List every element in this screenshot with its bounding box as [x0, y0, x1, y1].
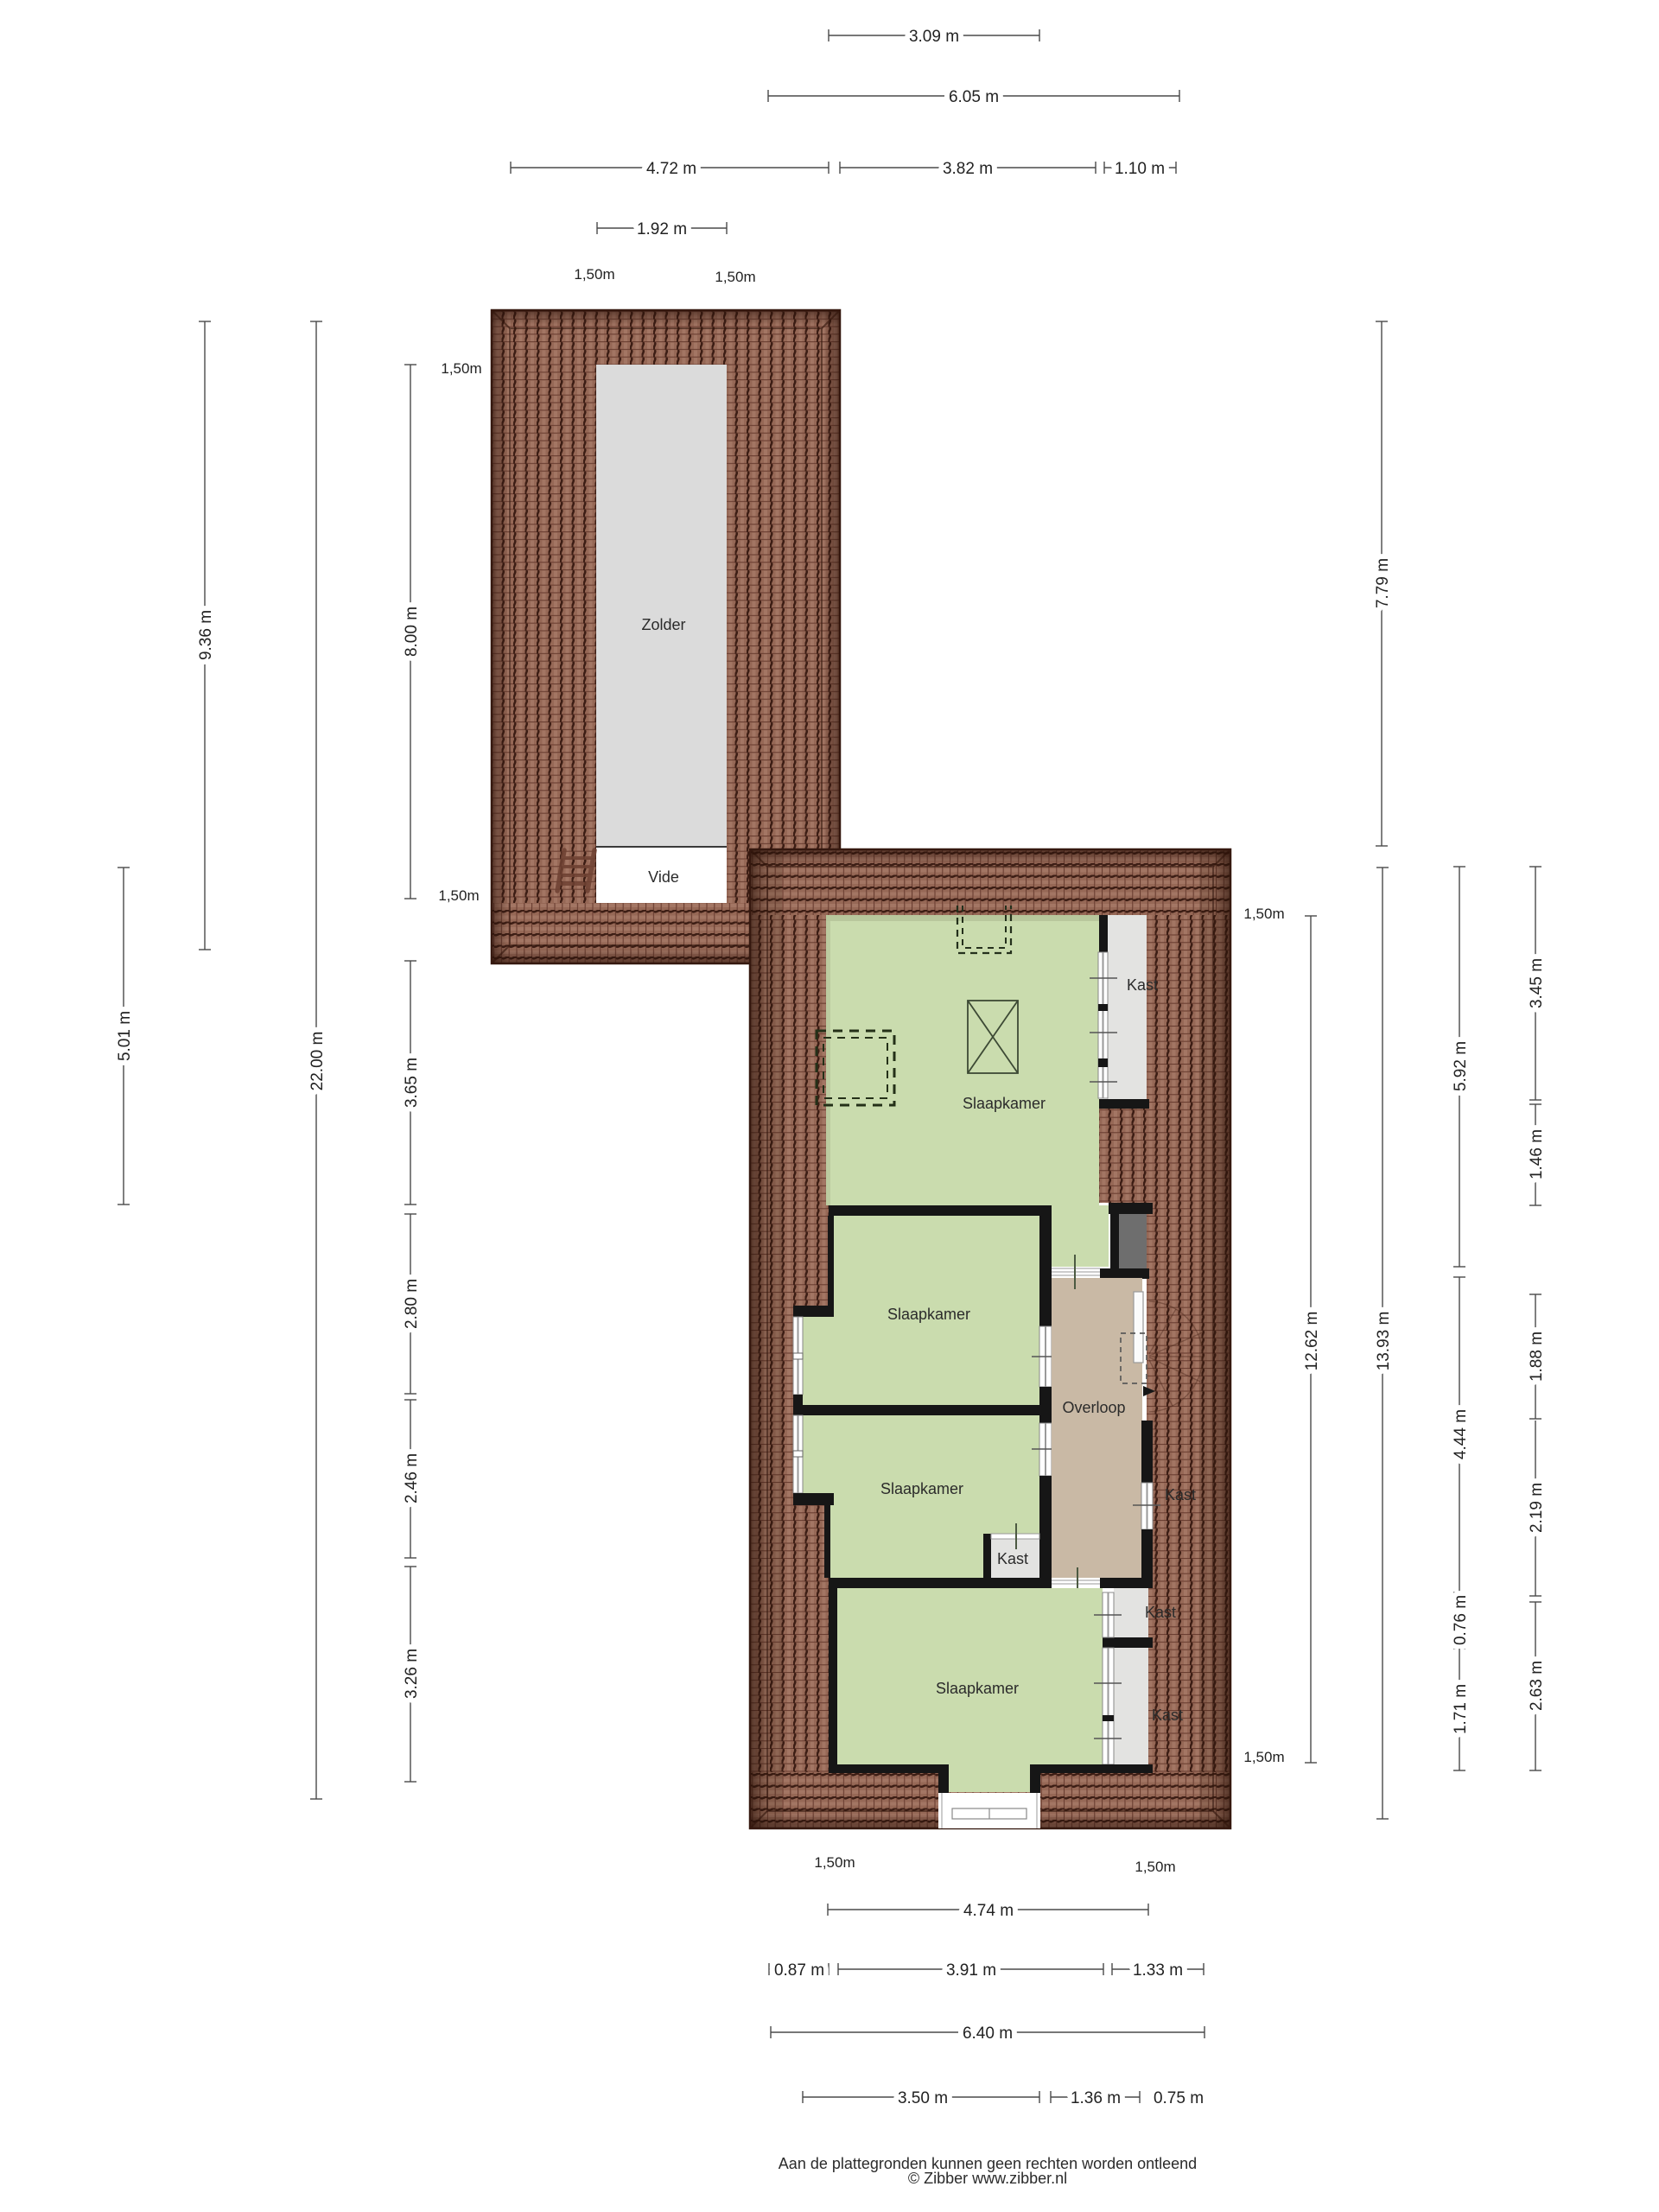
- svg-text:1.33 m: 1.33 m: [1133, 1961, 1183, 1980]
- svg-text:Slaapkamer: Slaapkamer: [963, 1095, 1046, 1112]
- svg-text:12.62 m: 12.62 m: [1303, 1312, 1321, 1371]
- svg-text:© Zibber www.zibber.nl: © Zibber www.zibber.nl: [908, 2170, 1067, 2187]
- svg-text:1,50m: 1,50m: [814, 1854, 855, 1871]
- svg-text:Vide: Vide: [648, 868, 679, 886]
- svg-text:Slaapkamer: Slaapkamer: [880, 1480, 963, 1497]
- svg-text:Slaapkamer: Slaapkamer: [936, 1680, 1019, 1697]
- svg-text:22.00 m: 22.00 m: [308, 1032, 327, 1091]
- svg-text:1.71 m: 1.71 m: [1452, 1684, 1470, 1734]
- svg-text:8.00 m: 8.00 m: [403, 607, 421, 657]
- svg-text:1,50m: 1,50m: [1135, 1859, 1175, 1875]
- svg-text:1.46 m: 1.46 m: [1528, 1129, 1546, 1179]
- svg-text:13.93 m: 13.93 m: [1375, 1312, 1393, 1371]
- svg-text:Zolder: Zolder: [641, 616, 685, 633]
- svg-text:1,50m: 1,50m: [574, 266, 614, 283]
- svg-text:Overloop: Overloop: [1062, 1399, 1125, 1416]
- svg-text:0.75 m: 0.75 m: [1154, 2089, 1204, 2107]
- svg-text:5.01 m: 5.01 m: [116, 1011, 134, 1061]
- svg-text:5.92 m: 5.92 m: [1452, 1041, 1470, 1091]
- svg-text:Kast: Kast: [1152, 1707, 1183, 1724]
- svg-text:Kast: Kast: [1165, 1486, 1196, 1503]
- svg-text:1,50m: 1,50m: [438, 887, 479, 904]
- svg-text:2.19 m: 2.19 m: [1528, 1483, 1546, 1533]
- svg-text:1,50m: 1,50m: [715, 269, 755, 285]
- svg-text:1.36 m: 1.36 m: [1071, 2089, 1121, 2107]
- svg-text:7.79 m: 7.79 m: [1374, 558, 1392, 608]
- svg-text:9.36 m: 9.36 m: [197, 610, 215, 660]
- svg-text:4.74 m: 4.74 m: [963, 1902, 1014, 1920]
- svg-text:1,50m: 1,50m: [1243, 906, 1284, 922]
- svg-text:1.88 m: 1.88 m: [1528, 1332, 1546, 1382]
- svg-text:1.92 m: 1.92 m: [637, 220, 687, 238]
- svg-text:3.09 m: 3.09 m: [909, 28, 959, 46]
- svg-text:1,50m: 1,50m: [1243, 1749, 1284, 1765]
- svg-text:4.44 m: 4.44 m: [1452, 1409, 1470, 1459]
- svg-text:Kast: Kast: [1127, 976, 1158, 994]
- svg-text:1.10 m: 1.10 m: [1115, 160, 1165, 178]
- svg-text:3.65 m: 3.65 m: [403, 1058, 421, 1108]
- svg-text:1,50m: 1,50m: [441, 360, 481, 377]
- svg-text:4.72 m: 4.72 m: [646, 160, 696, 178]
- svg-text:0.76 m: 0.76 m: [1452, 1595, 1470, 1645]
- svg-text:6.40 m: 6.40 m: [963, 2024, 1013, 2043]
- svg-text:3.82 m: 3.82 m: [943, 160, 993, 178]
- svg-text:3.26 m: 3.26 m: [403, 1649, 421, 1699]
- svg-text:Kast: Kast: [1145, 1604, 1176, 1621]
- svg-text:Slaapkamer: Slaapkamer: [887, 1306, 970, 1323]
- svg-text:3.50 m: 3.50 m: [898, 2089, 948, 2107]
- svg-text:3.45 m: 3.45 m: [1528, 958, 1546, 1008]
- svg-text:6.05 m: 6.05 m: [949, 88, 999, 106]
- svg-text:2.46 m: 2.46 m: [403, 1453, 421, 1503]
- svg-text:2.80 m: 2.80 m: [403, 1279, 421, 1329]
- svg-text:2.63 m: 2.63 m: [1528, 1661, 1546, 1711]
- svg-text:0.87 m: 0.87 m: [774, 1961, 824, 1980]
- svg-text:3.91 m: 3.91 m: [946, 1961, 996, 1980]
- svg-text:Kast: Kast: [997, 1550, 1028, 1567]
